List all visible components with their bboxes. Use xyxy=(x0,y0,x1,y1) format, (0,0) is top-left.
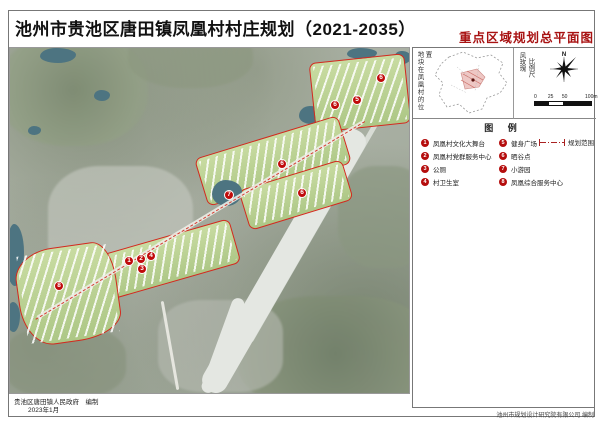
legend-item: 1 凤凰村文化大舞台 xyxy=(421,137,485,149)
wind-rose-label: 风玫瑰 xyxy=(517,52,526,116)
legend-number-badge: 5 xyxy=(499,139,507,147)
satellite-plan-map[interactable]: 65667612438 xyxy=(9,47,410,394)
legend-number-badge: 8 xyxy=(499,178,507,186)
map-marker-6[interactable]: 6 xyxy=(330,100,340,110)
legend-title: 图 例 xyxy=(413,121,594,134)
compass-caption: 风玫瑰 比例尺 xyxy=(517,52,535,116)
scale-tick: 25 xyxy=(548,94,554,100)
legend-item: 8 凤凰综合服务中心 xyxy=(499,176,563,188)
map-marker-7[interactable]: 7 xyxy=(224,190,234,200)
legend-number-badge: 6 xyxy=(499,152,507,160)
map-marker-6[interactable]: 6 xyxy=(376,73,386,83)
legend-item: 4 村卫生室 xyxy=(421,176,459,188)
compiler-credit: 贵池区唐田镇人民政府 编制 2023年1月 xyxy=(14,399,99,415)
map-marker-3[interactable]: 3 xyxy=(137,264,147,274)
scale-tick: 0 xyxy=(534,94,537,100)
map-marker-8[interactable]: 8 xyxy=(54,281,64,291)
scale-tick: 100m xyxy=(585,94,598,100)
map-marker-6[interactable]: 6 xyxy=(297,188,307,198)
design-institute-credit: 池州市规划设计研究院有限公司 编制 xyxy=(412,410,594,419)
scale-tick: 50 xyxy=(562,94,568,100)
map-marker-2[interactable]: 2 xyxy=(136,254,146,264)
legend-number-badge: 2 xyxy=(421,152,429,160)
legend-number-badge: 7 xyxy=(499,165,507,173)
legend-item: 2 凤凰村党群服务中心 xyxy=(421,150,492,162)
map-info-panel: 地块在凤凰村的位置 风玫瑰 比例尺 N 0 25 xyxy=(412,47,595,408)
scale-bar: 0 25 50 100m xyxy=(534,94,592,106)
legend-item: 3 公厕 xyxy=(421,163,446,175)
location-inset-map: 地块在凤凰村的位置 xyxy=(413,48,514,119)
forest-patch xyxy=(338,166,410,268)
village-outline-map xyxy=(427,49,513,118)
scale-label: 比例尺 xyxy=(526,58,535,116)
page-title: 池州市贵池区唐田镇凤凰村村庄规划（2021-2035） xyxy=(15,15,416,40)
map-marker-4[interactable]: 4 xyxy=(146,251,156,261)
planning-boundary-label: 规划范围 xyxy=(568,137,594,147)
wind-rose-icon: N xyxy=(542,49,586,93)
legend-item: 7 小游园 xyxy=(499,163,531,175)
planning-boundary-symbol xyxy=(539,139,565,146)
drawing-title: 重点区域规划总平面图 xyxy=(412,27,594,46)
plan-sheet: 池州市贵池区唐田镇凤凰村村庄规划（2021-2035） 重点区域规划总平面图 6… xyxy=(0,0,600,424)
legend-item: 5 健身广场 xyxy=(499,137,537,149)
map-marker-1[interactable]: 1 xyxy=(124,256,134,266)
legend-item: 6 晒谷点 xyxy=(499,150,531,162)
compile-date: 2023年1月 xyxy=(28,407,99,415)
plan-cluster-southwest xyxy=(12,240,124,349)
legend-number-badge: 4 xyxy=(421,178,429,186)
map-marker-5[interactable]: 5 xyxy=(352,95,362,105)
legend-number-badge: 1 xyxy=(421,139,429,147)
legend-number-badge: 3 xyxy=(421,165,429,173)
map-marker-6[interactable]: 6 xyxy=(277,159,287,169)
compass-scale-box: 风玫瑰 比例尺 N 0 25 50 100m xyxy=(514,48,596,119)
